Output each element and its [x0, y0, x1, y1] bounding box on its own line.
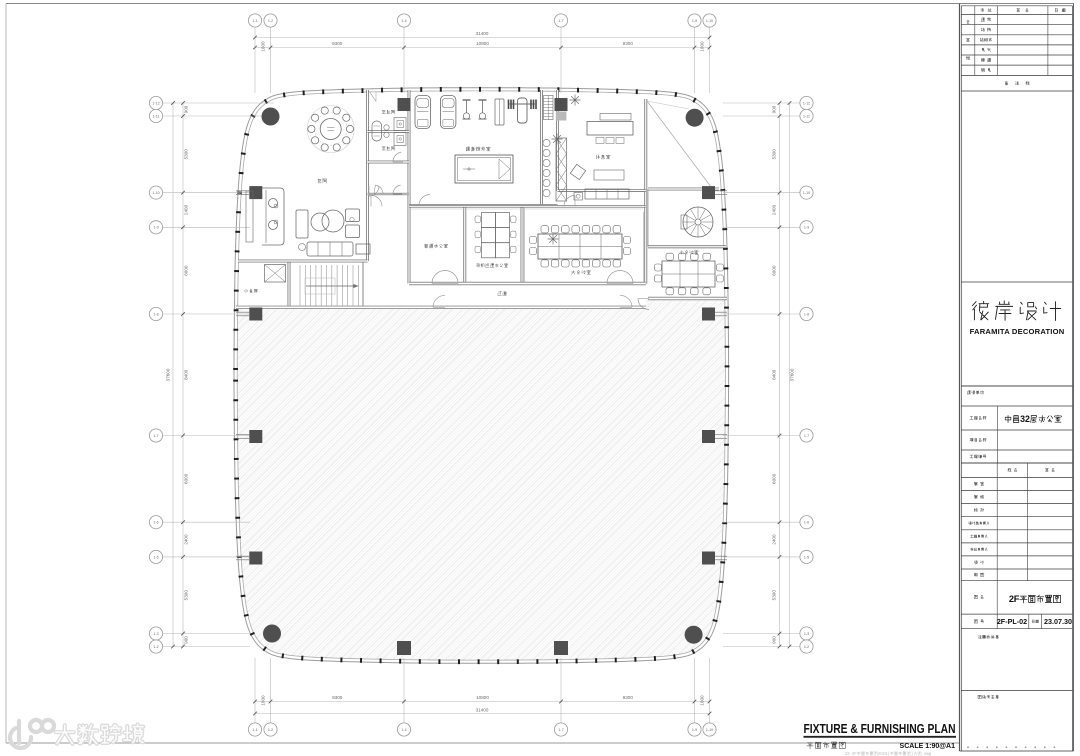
svg-text:1-4: 1-4: [401, 728, 406, 732]
svg-text:1-2: 1-2: [804, 645, 809, 649]
svg-text:2F-PL-02: 2F-PL-02: [997, 617, 1027, 626]
svg-text:1000: 1000: [260, 695, 265, 706]
svg-text:2400: 2400: [771, 204, 776, 215]
svg-text:1-9: 1-9: [692, 19, 697, 23]
svg-text:1-2: 1-2: [153, 645, 158, 649]
svg-text:1-6: 1-6: [153, 521, 158, 525]
svg-text:1-5: 1-5: [804, 555, 809, 559]
svg-text:9300: 9300: [623, 695, 634, 700]
svg-text:10800: 10800: [476, 41, 489, 46]
svg-text:1-9: 1-9: [692, 728, 697, 732]
svg-text:5300: 5300: [184, 590, 189, 601]
svg-text:900: 900: [772, 105, 777, 113]
svg-text:6000: 6000: [771, 265, 776, 276]
svg-text:900: 900: [772, 636, 777, 644]
svg-text:6000: 6000: [184, 473, 189, 484]
svg-text:1-3: 1-3: [153, 632, 158, 636]
svg-text:6000: 6000: [183, 265, 188, 276]
svg-text:1-5: 1-5: [153, 555, 158, 559]
svg-text:1-1: 1-1: [252, 728, 257, 732]
svg-text:2400: 2400: [183, 204, 188, 215]
svg-text:8400: 8400: [772, 369, 777, 380]
svg-text:1-11: 1-11: [153, 114, 160, 118]
svg-text:1-3: 1-3: [804, 632, 809, 636]
svg-text:900: 900: [184, 636, 189, 644]
svg-text:37600: 37600: [790, 368, 795, 381]
svg-text:2: 2: [1025, 414, 1030, 424]
svg-text:1-4: 1-4: [401, 19, 406, 23]
svg-text:2400: 2400: [183, 534, 188, 545]
svg-text:23.07.30: 23.07.30: [1044, 617, 1072, 626]
svg-text:9300: 9300: [332, 41, 343, 46]
svg-text:1-9: 1-9: [153, 226, 158, 230]
svg-text:FARAMITA DECORATION: FARAMITA DECORATION: [970, 327, 1065, 336]
svg-text:1-9: 1-9: [804, 226, 809, 230]
svg-text:FIXTURE & FURNISHING PLAN: FIXTURE & FURNISHING PLAN: [804, 721, 956, 736]
svg-text:1-7: 1-7: [804, 434, 809, 438]
svg-text:900: 900: [184, 105, 189, 113]
svg-text:1000: 1000: [700, 41, 705, 52]
svg-text:2400: 2400: [771, 534, 776, 545]
svg-text:1-11: 1-11: [803, 114, 810, 118]
svg-text:1000: 1000: [260, 41, 265, 52]
svg-text:5300: 5300: [184, 149, 189, 160]
svg-text:1-10: 1-10: [803, 191, 810, 195]
svg-text:31400: 31400: [476, 31, 489, 36]
svg-text:1-8: 1-8: [153, 312, 158, 316]
svg-text:1000: 1000: [700, 695, 705, 706]
svg-text:31400: 31400: [476, 708, 489, 713]
svg-text:1-2: 1-2: [268, 19, 273, 23]
svg-text:5300: 5300: [772, 590, 777, 601]
svg-text:9300: 9300: [623, 41, 634, 46]
svg-text:1-10: 1-10: [706, 728, 713, 732]
svg-text:10800: 10800: [476, 695, 489, 700]
svg-text:SCALE 1:90@A1: SCALE 1:90@A1: [900, 743, 956, 750]
svg-text:1-7: 1-7: [558, 728, 563, 732]
svg-text:5300: 5300: [772, 149, 777, 160]
svg-text:37600: 37600: [166, 368, 171, 381]
svg-text:9300: 9300: [332, 695, 343, 700]
svg-text:1-6: 1-6: [804, 521, 809, 525]
svg-text:1-10: 1-10: [152, 191, 159, 195]
svg-text:1-12: 1-12: [152, 101, 159, 105]
svg-text:1-7: 1-7: [558, 19, 563, 23]
svg-text:F: F: [1014, 594, 1020, 604]
svg-text:8400: 8400: [184, 369, 189, 380]
svg-text:1-12: 1-12: [803, 101, 810, 105]
svg-text:1-8: 1-8: [804, 312, 809, 316]
svg-text:1-1: 1-1: [252, 19, 257, 23]
svg-text:6000: 6000: [772, 473, 777, 484]
svg-text:1-7: 1-7: [153, 434, 158, 438]
svg-text:1-10: 1-10: [706, 19, 713, 23]
svg-text:F: F: [854, 751, 857, 756]
svg-text:1-2: 1-2: [268, 728, 273, 732]
